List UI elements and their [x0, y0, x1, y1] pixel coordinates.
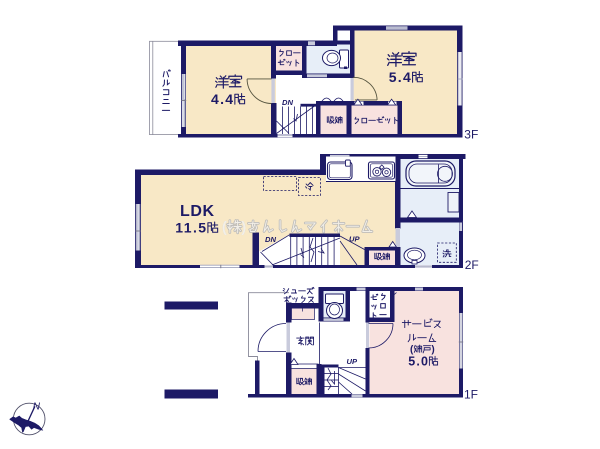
svg-text:UP: UP	[349, 235, 360, 244]
svg-text:(: (	[222, 219, 227, 236]
svg-text:LDK: LDK	[180, 203, 214, 220]
svg-text:5.4: 5.4	[389, 69, 411, 85]
svg-text:1F: 1F	[464, 387, 478, 401]
svg-text:2F: 2F	[465, 258, 479, 272]
svg-text:3F: 3F	[464, 128, 478, 142]
svg-text:5.0: 5.0	[408, 355, 428, 369]
svg-text:): )	[431, 345, 434, 356]
svg-text:DN: DN	[282, 98, 293, 107]
svg-text:4.4: 4.4	[211, 91, 233, 107]
svg-text:11.5: 11.5	[175, 220, 206, 236]
svg-text:UP: UP	[347, 357, 358, 366]
svg-text:DN: DN	[265, 235, 276, 244]
svg-text:): )	[241, 219, 246, 236]
